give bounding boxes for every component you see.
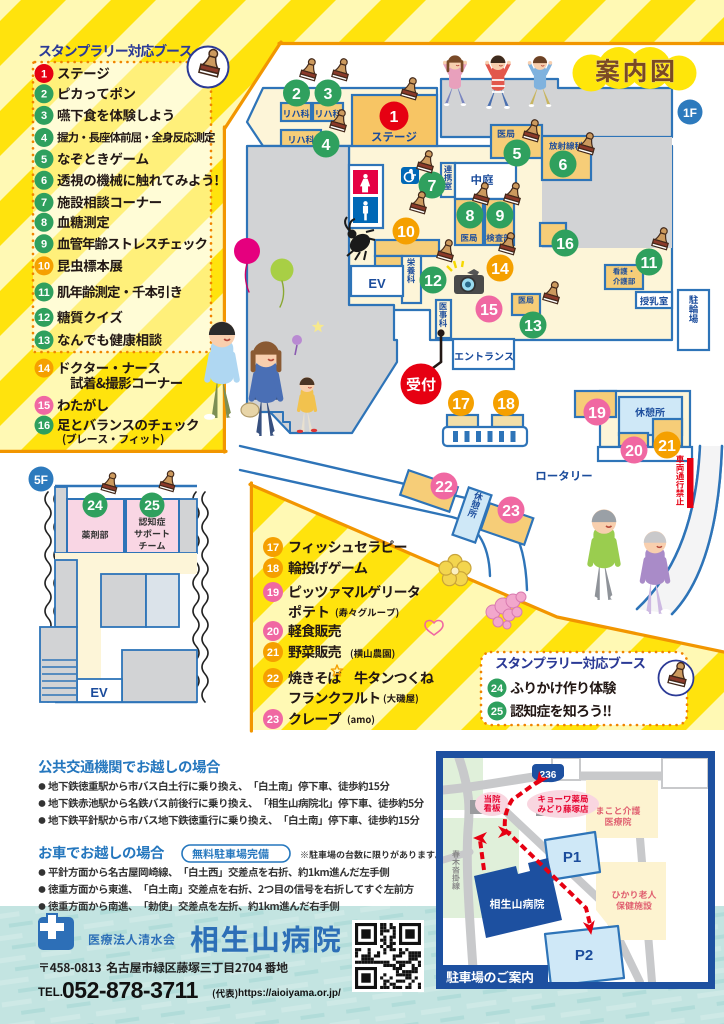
- svg-text:7: 7: [428, 178, 437, 195]
- svg-text:20: 20: [625, 443, 643, 460]
- svg-text:8: 8: [466, 208, 475, 225]
- svg-text:7: 7: [41, 197, 47, 209]
- svg-text:14: 14: [38, 363, 51, 375]
- svg-text:16: 16: [556, 236, 574, 253]
- svg-text:18: 18: [497, 396, 515, 413]
- svg-text:25: 25: [491, 706, 503, 718]
- svg-text:20: 20: [267, 626, 279, 638]
- svg-text:11: 11: [38, 287, 50, 299]
- svg-text:9: 9: [41, 239, 47, 251]
- svg-text:5F: 5F: [34, 473, 48, 487]
- svg-text:21: 21: [267, 647, 279, 659]
- svg-text:16: 16: [38, 420, 50, 432]
- svg-text:21: 21: [658, 438, 676, 455]
- svg-text:13: 13: [38, 335, 50, 347]
- svg-text:13: 13: [524, 318, 542, 335]
- svg-text:23: 23: [267, 714, 279, 726]
- svg-text:052-878-3711: 052-878-3711: [62, 977, 199, 1003]
- svg-text:10: 10: [38, 261, 50, 273]
- svg-text:1: 1: [41, 68, 47, 80]
- svg-text:P1: P1: [563, 849, 581, 866]
- svg-text:3: 3: [324, 86, 333, 103]
- svg-text:19: 19: [267, 587, 279, 599]
- svg-text:2: 2: [41, 89, 47, 101]
- svg-text:2: 2: [292, 86, 301, 103]
- svg-text:17: 17: [267, 542, 279, 554]
- svg-text:EV: EV: [90, 685, 108, 700]
- svg-text:9: 9: [496, 208, 505, 225]
- svg-text:15: 15: [38, 400, 50, 412]
- svg-text:6: 6: [41, 175, 47, 187]
- svg-text:5: 5: [41, 154, 47, 166]
- svg-text:TEL.: TEL.: [38, 987, 63, 999]
- svg-text:24: 24: [491, 683, 504, 695]
- svg-text:8: 8: [41, 217, 47, 229]
- svg-text:4: 4: [41, 132, 48, 144]
- svg-text:P2: P2: [575, 947, 593, 964]
- svg-text:https://aioiyama.or.jp/: https://aioiyama.or.jp/: [238, 988, 341, 999]
- svg-text:17: 17: [452, 396, 470, 413]
- svg-text:25: 25: [144, 497, 160, 513]
- svg-text:11: 11: [641, 255, 658, 272]
- svg-text:14: 14: [491, 261, 509, 278]
- svg-text:22: 22: [267, 673, 279, 685]
- svg-text:4: 4: [322, 137, 331, 154]
- svg-text:23: 23: [502, 503, 520, 520]
- svg-text:15: 15: [480, 302, 498, 319]
- svg-text:5: 5: [513, 146, 522, 163]
- svg-text:EV: EV: [368, 276, 386, 291]
- svg-text:18: 18: [267, 563, 279, 575]
- svg-text:19: 19: [588, 405, 606, 422]
- svg-text:24: 24: [87, 497, 103, 513]
- svg-text:1: 1: [390, 109, 399, 126]
- svg-text:10: 10: [397, 224, 415, 241]
- svg-text:22: 22: [435, 479, 453, 496]
- svg-text:3: 3: [41, 110, 47, 122]
- svg-text:1F: 1F: [683, 106, 697, 120]
- svg-text:12: 12: [424, 273, 442, 290]
- svg-text:6: 6: [559, 157, 568, 174]
- svg-text:12: 12: [38, 312, 50, 324]
